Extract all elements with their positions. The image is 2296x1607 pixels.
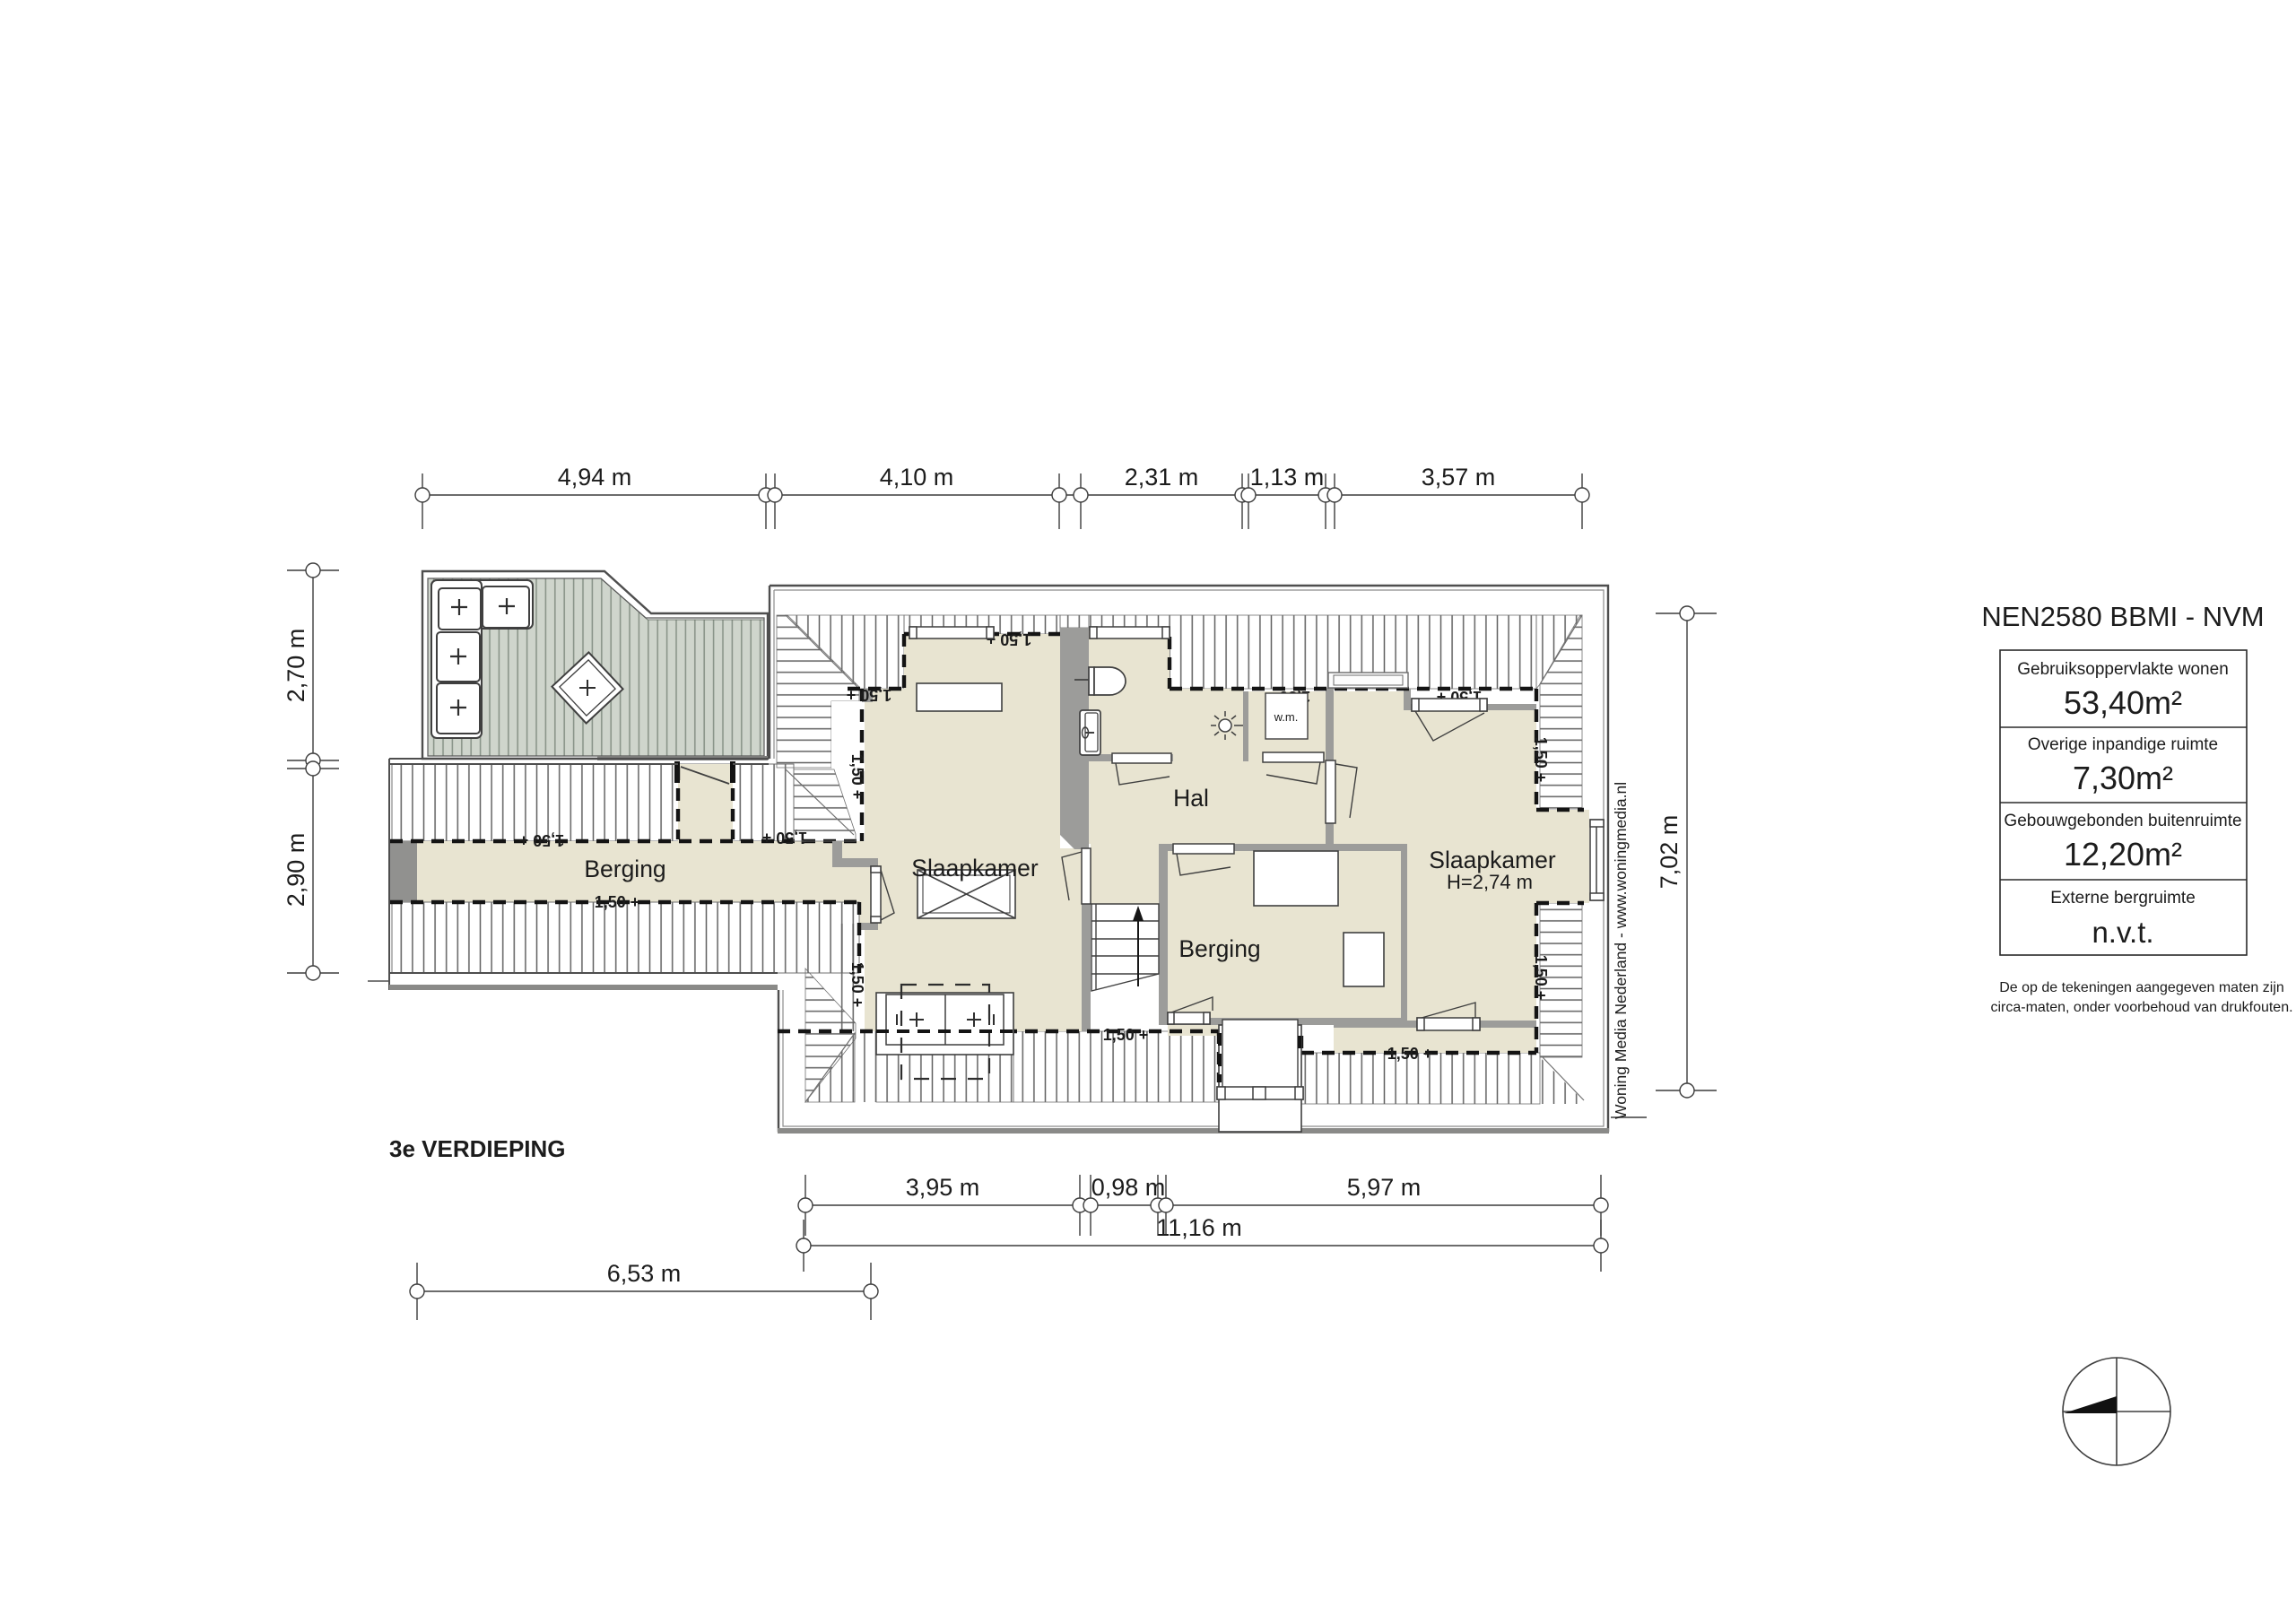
- svg-text:Hal: Hal: [1173, 785, 1209, 812]
- svg-text:Slaapkamer: Slaapkamer: [1429, 847, 1556, 873]
- svg-text:1,50 +: 1,50 +: [595, 893, 640, 911]
- svg-text:2,90 m: 2,90 m: [283, 833, 309, 908]
- svg-text:1,50 +: 1,50 +: [848, 754, 866, 800]
- svg-text:0,98 m: 0,98 m: [1091, 1174, 1166, 1201]
- svg-text:circa-maten, onder voorbehoud: circa-maten, onder voorbehoud van drukfo…: [1990, 1000, 2292, 1015]
- svg-text:n.v.t.: n.v.t.: [2092, 916, 2153, 949]
- svg-text:Woning Media Nederland - www.w: Woning Media Nederland - www.woningmedia…: [1612, 782, 1630, 1119]
- svg-text:3,95 m: 3,95 m: [906, 1174, 980, 1201]
- svg-text:7,30m²: 7,30m²: [2073, 760, 2173, 796]
- svg-text:1,50 +: 1,50 +: [1103, 1026, 1149, 1044]
- svg-text:1,50 +: 1,50 +: [1532, 955, 1550, 1001]
- svg-text:Berging: Berging: [584, 856, 665, 882]
- svg-text:1,50 +: 1,50 +: [1532, 737, 1550, 783]
- svg-text:H=2,74 m: H=2,74 m: [1447, 871, 1533, 893]
- svg-text:2,31 m: 2,31 m: [1125, 464, 1199, 491]
- svg-text:Slaapkamer: Slaapkamer: [911, 855, 1039, 882]
- svg-text:12,20m²: 12,20m²: [2064, 836, 2182, 873]
- svg-text:4,94 m: 4,94 m: [558, 464, 632, 491]
- svg-text:Externe bergruimte: Externe bergruimte: [2050, 889, 2196, 908]
- svg-text:11,16 m: 11,16 m: [1156, 1214, 1242, 1241]
- svg-text:5,97 m: 5,97 m: [1347, 1174, 1422, 1201]
- svg-text:Berging: Berging: [1178, 935, 1260, 962]
- svg-text:1,50 +: 1,50 +: [1387, 1045, 1433, 1063]
- svg-text:w.m.: w.m.: [1274, 710, 1299, 724]
- svg-text:1,50 +: 1,50 +: [848, 962, 866, 1008]
- svg-text:2,70 m: 2,70 m: [283, 629, 309, 703]
- svg-text:6,53 m: 6,53 m: [607, 1260, 682, 1287]
- svg-text:1,50 +: 1,50 +: [519, 831, 565, 849]
- svg-text:Gebruiksoppervlakte wonen: Gebruiksoppervlakte wonen: [2017, 660, 2229, 679]
- svg-text:3,57 m: 3,57 m: [1422, 464, 1496, 491]
- svg-text:1,13 m: 1,13 m: [1250, 464, 1325, 491]
- svg-text:7,02 m: 7,02 m: [1656, 815, 1683, 890]
- svg-text:1,50 +: 1,50 +: [847, 686, 892, 704]
- svg-text:53,40m²: 53,40m²: [2064, 684, 2182, 721]
- svg-text:Overige inpandige ruimte: Overige inpandige ruimte: [2028, 735, 2218, 754]
- svg-text:3e VERDIEPING: 3e VERDIEPING: [389, 1135, 566, 1162]
- svg-text:NEN2580 BBMI - NVM: NEN2580 BBMI - NVM: [1981, 601, 2264, 632]
- svg-text:Gebouwgebonden buitenruimte: Gebouwgebonden buitenruimte: [2004, 812, 2241, 830]
- svg-text:4,10 m: 4,10 m: [880, 464, 954, 491]
- svg-text:De op de tekeningen aangegeven: De op de tekeningen aangegeven maten zij…: [1999, 980, 2284, 995]
